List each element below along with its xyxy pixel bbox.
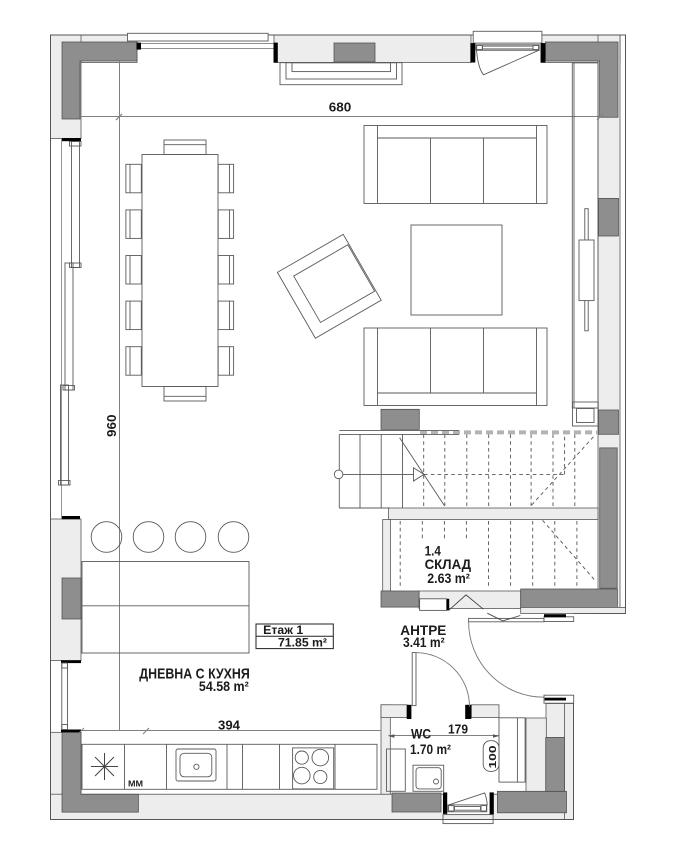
svg-text:ММ: ММ: [128, 780, 143, 789]
svg-text:179: 179: [448, 723, 468, 737]
svg-text:71.85 m²: 71.85 m²: [278, 636, 327, 650]
svg-text:960: 960: [105, 414, 119, 437]
svg-text:680: 680: [329, 101, 352, 115]
svg-text:54.58 m²: 54.58 m²: [199, 678, 249, 694]
svg-text:394: 394: [218, 718, 240, 732]
svg-text:100: 100: [487, 745, 499, 768]
svg-text:2.63 m²: 2.63 m²: [427, 571, 470, 586]
svg-text:3.41 m²: 3.41 m²: [403, 635, 445, 650]
svg-text:1.70 m²: 1.70 m²: [410, 742, 451, 757]
svg-text:WC: WC: [411, 726, 431, 742]
